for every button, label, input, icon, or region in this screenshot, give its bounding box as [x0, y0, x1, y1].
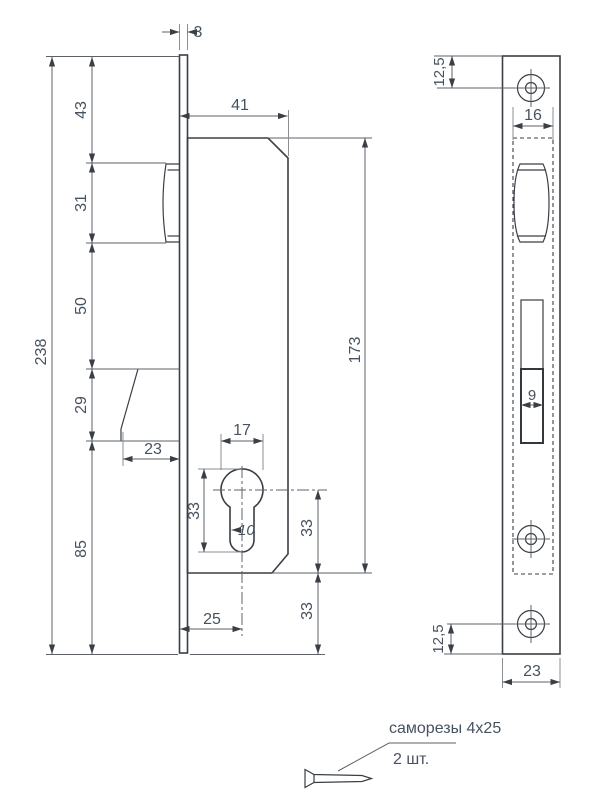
dim-screw-top-offset: 12,5 — [431, 56, 512, 88]
dim-cylinder-slot: 10 — [232, 522, 256, 539]
dim-cylinder-width: 17 — [221, 422, 263, 470]
dim-faceplate-thickness-label: 3 — [194, 24, 203, 41]
dim-latch-to-lever-label: 50 — [73, 297, 90, 315]
screw-hole-top — [512, 69, 550, 107]
dim-screw-bottom-offset-label: 12,5 — [430, 624, 447, 653]
screw-drawing — [305, 770, 372, 788]
latch-bolt-side — [163, 164, 180, 242]
dim-body-height: 173 — [347, 138, 365, 573]
legend-quantity-label: 2 шт. — [393, 751, 429, 768]
dim-latch-height-label: 31 — [73, 194, 90, 212]
dim-lever-depth-label: 23 — [144, 441, 162, 458]
screw-hole-bottom — [512, 605, 550, 643]
dim-body-height-label: 173 — [347, 337, 364, 364]
dim-screw-bottom-offset: 12,5 — [430, 624, 512, 654]
dim-bottom-section-label: 85 — [73, 540, 90, 558]
dim-body-width: 41 — [180, 97, 289, 156]
dim-body-to-plate-end-label: 33 — [299, 602, 316, 620]
deadbolt-opening — [521, 300, 543, 369]
dim-total-height-label: 238 — [33, 339, 50, 366]
dim-lever-depth: 23 — [123, 432, 180, 466]
dim-cutout-width-label: 16 — [524, 107, 542, 124]
cutout-dashed-outline — [513, 138, 553, 574]
deadbolt-slot — [521, 300, 543, 443]
technical-drawing-lock: 238 43 31 50 29 85 3 41 — [0, 0, 601, 802]
dim-body-width-label: 41 — [231, 97, 249, 114]
faceplate-side — [180, 55, 188, 653]
dim-axis-offset-label: 25 — [203, 611, 221, 628]
lever-edge — [121, 369, 138, 441]
dim-axis-offset: 25 — [180, 611, 242, 629]
right-view — [503, 56, 561, 654]
dim-screw-top-offset-label: 12,5 — [431, 57, 448, 86]
latch-bolt-front — [514, 164, 549, 242]
drawing-canvas: 238 43 31 50 29 85 3 41 — [0, 0, 601, 802]
dim-cylinder-width-label: 17 — [233, 422, 251, 439]
dim-chain-left: 43 31 50 29 85 — [73, 57, 92, 654]
left-view-dimensions: 238 43 31 50 29 85 3 41 — [33, 24, 372, 655]
dim-lever-height-label: 29 — [73, 396, 90, 414]
dim-body-to-plate-end: 33 — [299, 573, 318, 654]
dim-plate-width-label: 23 — [523, 663, 541, 680]
dim-axis-to-bottom-label: 33 — [299, 519, 316, 537]
dim-top-to-latch-label: 43 — [73, 101, 90, 119]
dim-bolt-width: 9 — [521, 387, 543, 405]
left-view — [121, 55, 327, 653]
dim-total-height: 238 — [33, 57, 52, 654]
dim-bolt-width-label: 9 — [528, 387, 536, 404]
right-view-dimensions: 12,5 16 9 12,5 23 — [430, 56, 560, 688]
dim-cylinder-height: 33 — [186, 469, 242, 552]
legend-screws-label: саморезы 4x25 — [389, 720, 501, 737]
screw-hole-middle — [512, 520, 550, 558]
dim-faceplate-thickness: 3 — [162, 24, 203, 50]
dim-axis-to-bottom: 33 — [299, 490, 318, 573]
dim-cylinder-height-label: 33 — [186, 502, 203, 520]
faceplate-front — [503, 56, 561, 654]
dim-plate-width: 23 — [503, 658, 561, 688]
dim-cylinder-slot-label: 10 — [238, 522, 255, 539]
legend-screws: саморезы 4x25 2 шт. — [305, 720, 501, 788]
deadbolt-bolt — [521, 369, 543, 443]
dim-cutout-width: 16 — [513, 107, 553, 140]
